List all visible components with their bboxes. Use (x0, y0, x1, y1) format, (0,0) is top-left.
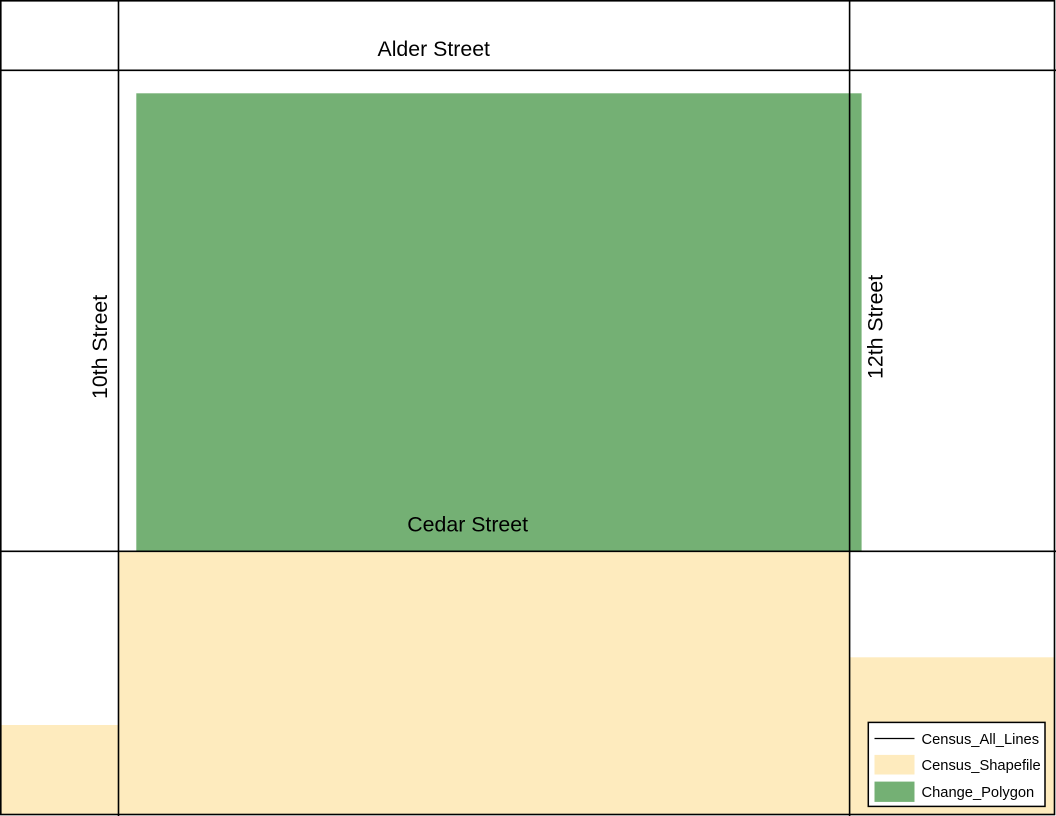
svg-text:Census_All_Lines: Census_All_Lines (922, 732, 1040, 748)
svg-text:Census_Shapefile: Census_Shapefile (922, 758, 1041, 774)
svg-text:Alder Street: Alder Street (378, 37, 491, 61)
svg-text:10th Street: 10th Street (88, 295, 112, 399)
svg-text:12th Street: 12th Street (864, 275, 888, 379)
svg-text:Cedar Street: Cedar Street (407, 513, 528, 537)
svg-text:Change_Polygon: Change_Polygon (922, 785, 1035, 801)
